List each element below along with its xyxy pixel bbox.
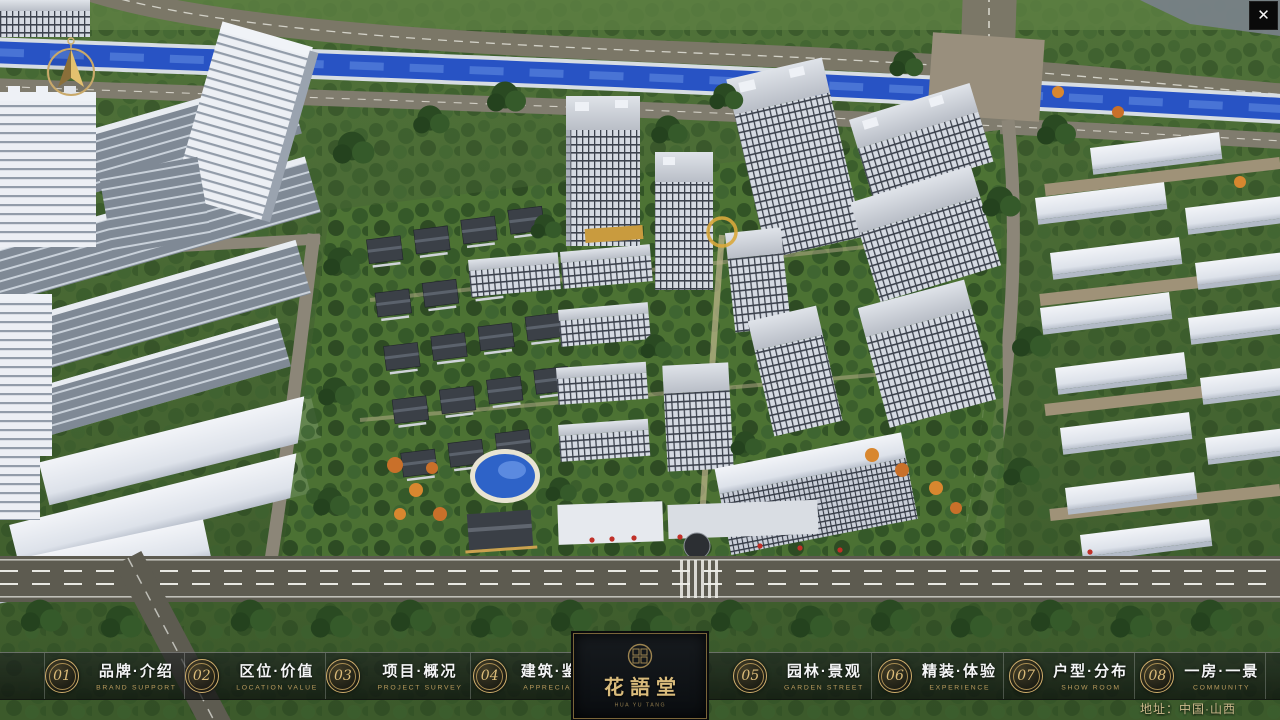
navbar-right-cap <box>1265 653 1280 699</box>
swimming-pool <box>470 449 540 503</box>
nav-badge-07-icon: 07 <box>1009 659 1043 693</box>
project-logo[interactable]: 花語堂 HUA YU TANG <box>573 633 707 719</box>
nav-item-03-project[interactable]: 03 项目·概况PROJECT SURVEY <box>325 653 470 699</box>
nav-title: 项目·概况 <box>383 660 458 681</box>
nav-item-08-view[interactable]: 08 一房·一景COMMUNITY <box>1134 653 1265 699</box>
nav-title: 一房·一景 <box>1184 660 1259 681</box>
logo-subtitle: HUA YU TANG <box>614 703 666 708</box>
nav-subtitle: SHOW ROOM <box>1061 684 1121 692</box>
nav-badge-02-icon: 02 <box>185 659 219 693</box>
nav-item-02-location[interactable]: 02 区位·价值LOCATION VALUE <box>184 653 325 699</box>
nav-badge-05-icon: 05 <box>733 659 767 693</box>
nav-title: 园林·景观 <box>787 660 862 681</box>
project-address: 地址：中国·山西 <box>1140 700 1236 717</box>
nav-badge-06-icon: 06 <box>878 659 912 693</box>
nav-badge-03-icon: 03 <box>326 659 360 693</box>
masterplan-3d-view[interactable] <box>0 0 1280 720</box>
nav-title: 精装·体验 <box>922 660 997 681</box>
nav-title: 户型·分布 <box>1053 660 1128 681</box>
logo-title: 花語堂 <box>598 671 682 700</box>
nav-subtitle: EXPERIENCE <box>929 684 990 692</box>
nav-item-05-landscape[interactable]: 05 园林·景观GARDEN STREET <box>733 653 871 699</box>
nav-badge-08-icon: 08 <box>1140 659 1174 693</box>
nav-subtitle: GARDEN STREET <box>784 684 864 692</box>
nav-item-01-brand[interactable]: 01 品牌·介绍BRAND SUPPORT <box>45 653 184 699</box>
nav-subtitle: PROJECT SURVEY <box>377 684 462 692</box>
presentation-root: ✕ 01 品牌·介绍BRAND SUPPORT 02 区位·价值LOCATION… <box>0 0 1280 720</box>
compass-icon <box>42 34 100 100</box>
nav-subtitle: BRAND SUPPORT <box>96 684 177 692</box>
nav-item-07-floorplan[interactable]: 07 户型·分布SHOW ROOM <box>1003 653 1134 699</box>
nav-title: 区位·价值 <box>239 660 314 681</box>
nav-badge-04-icon: 04 <box>473 659 507 693</box>
nav-title: 品牌·介绍 <box>99 660 174 681</box>
nav-subtitle: LOCATION VALUE <box>236 684 318 692</box>
logo-seal-icon <box>627 643 653 669</box>
nav-item-06-interior[interactable]: 06 精装·体验EXPERIENCE <box>871 653 1002 699</box>
nav-badge-01-icon: 01 <box>45 659 79 693</box>
nav-subtitle: COMMUNITY <box>1193 684 1250 692</box>
navbar-left-cap <box>0 653 45 699</box>
close-button[interactable]: ✕ <box>1249 1 1278 30</box>
